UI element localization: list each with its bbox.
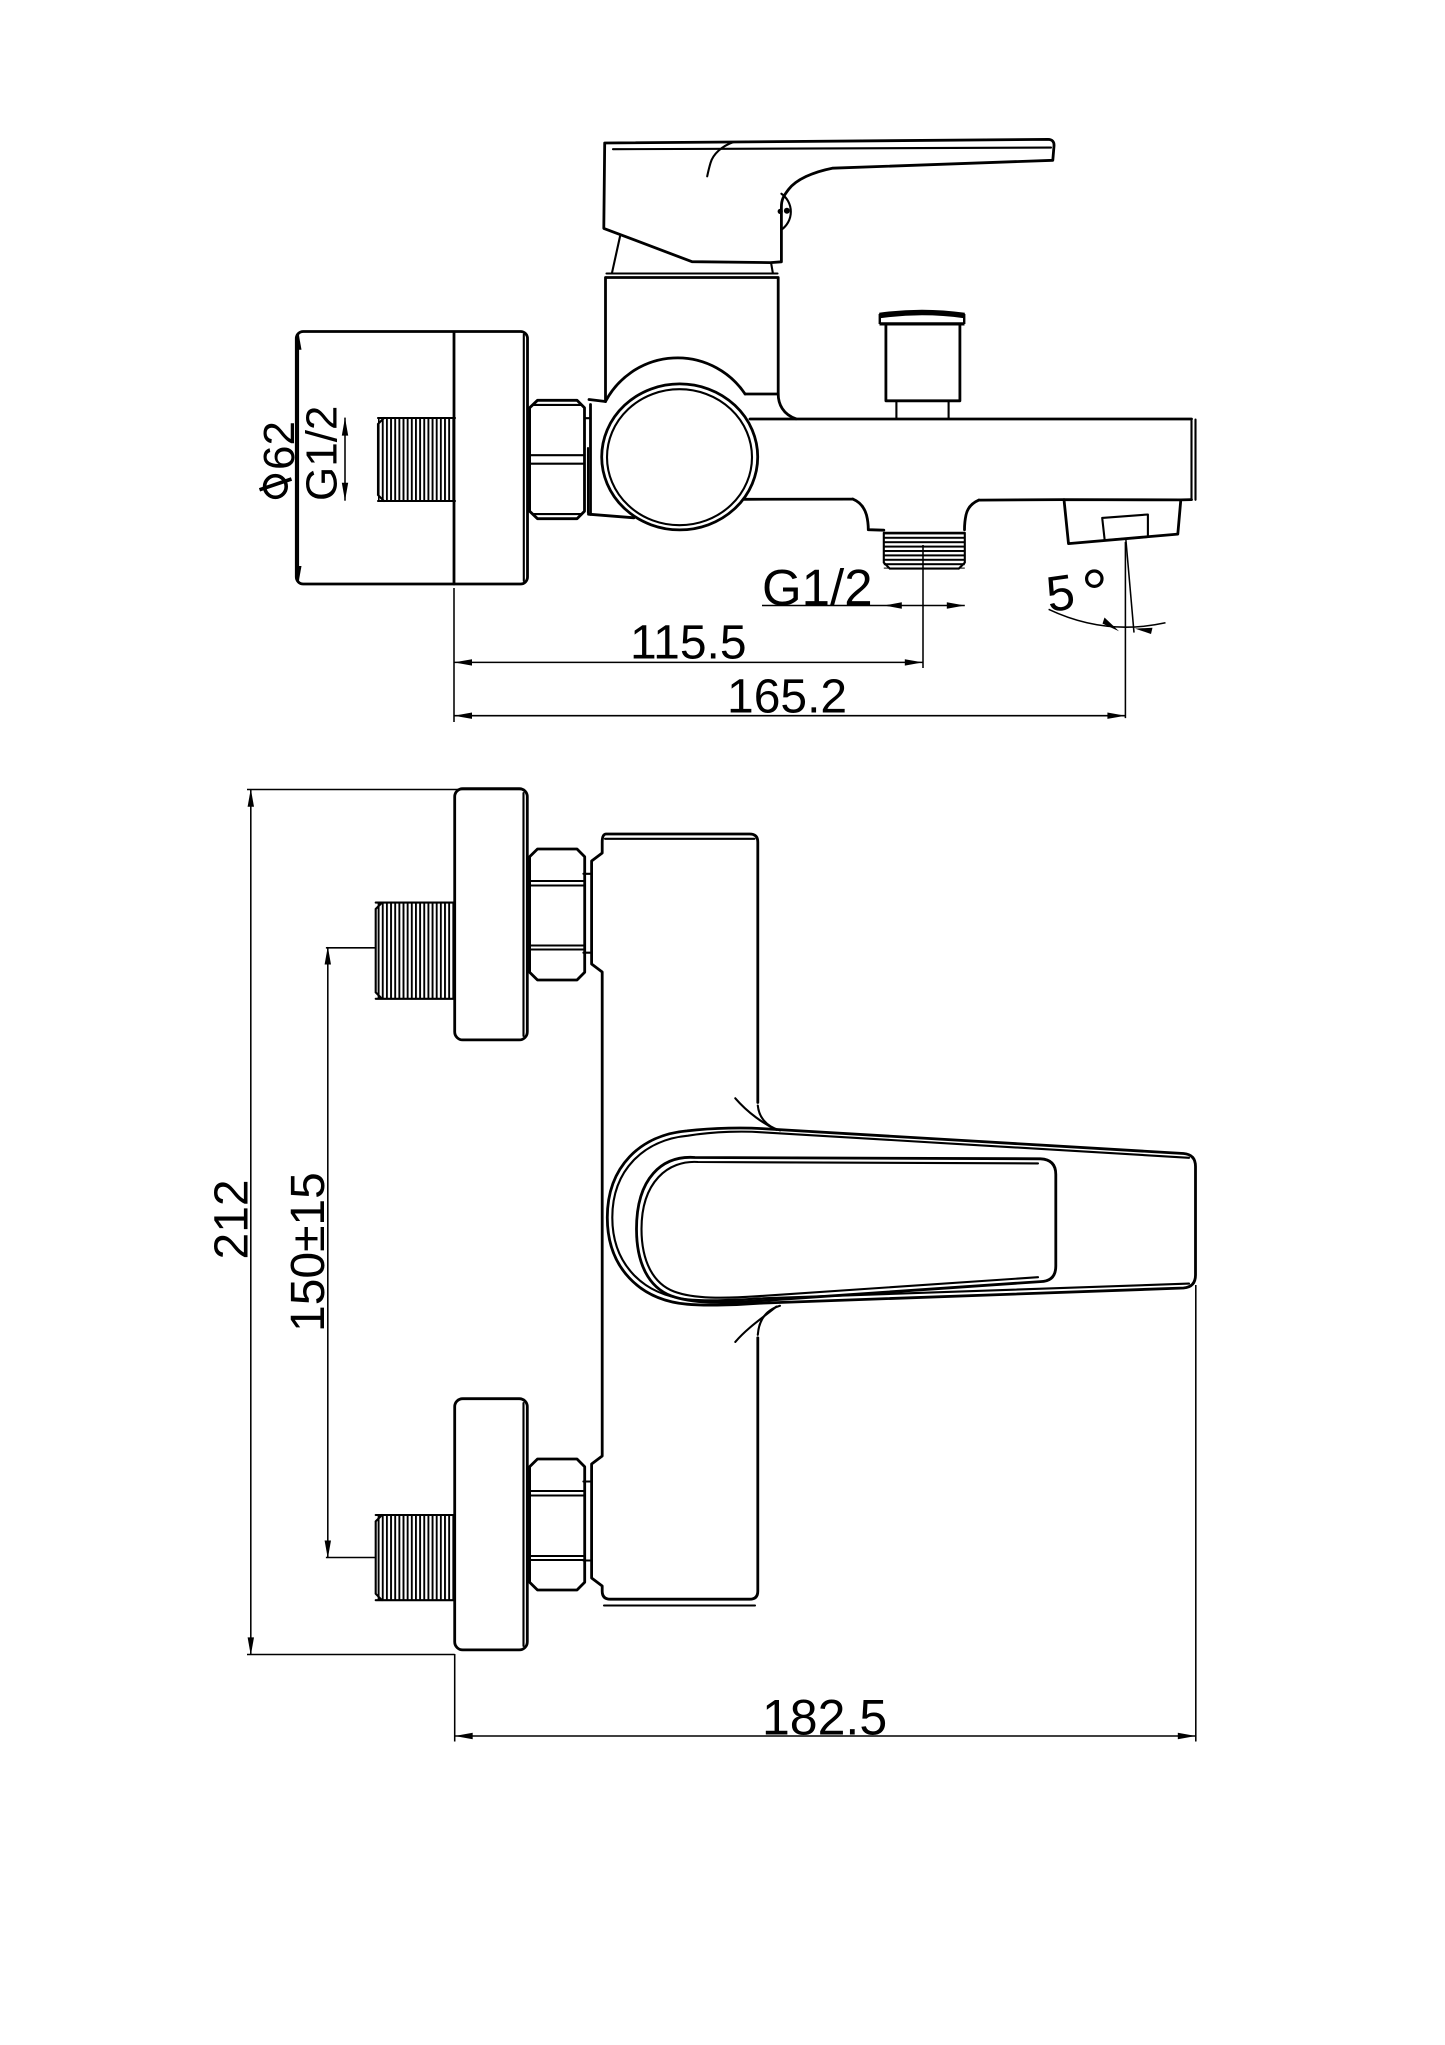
svg-text:G1/2: G1/2 [298, 406, 347, 501]
svg-text:115.5: 115.5 [630, 617, 747, 670]
svg-text:G1/2: G1/2 [762, 559, 873, 616]
svg-text:212: 212 [206, 1179, 259, 1259]
svg-text:150±15: 150±15 [282, 1172, 335, 1332]
svg-text:182.5: 182.5 [762, 1690, 887, 1746]
svg-text:165.2: 165.2 [727, 671, 847, 724]
